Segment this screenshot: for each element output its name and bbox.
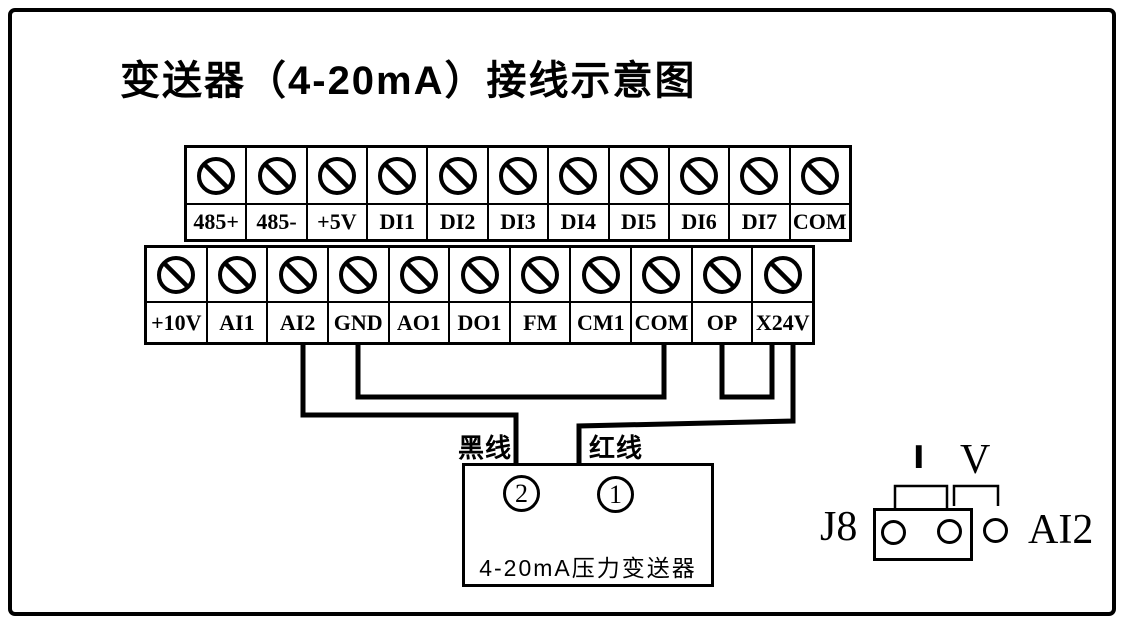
screw-terminal-icon [154, 253, 198, 297]
terminal-OP: OP [691, 248, 752, 342]
screw-terminal-icon [617, 154, 661, 198]
terminal-DO1: DO1 [448, 248, 509, 342]
screw-cell [308, 148, 366, 205]
terminal-label: AI1 [208, 303, 267, 342]
screw-terminal-icon [276, 253, 320, 297]
terminal-CM1: CM1 [569, 248, 630, 342]
terminal-label: COM [791, 205, 849, 239]
terminal-FM: FM [509, 248, 570, 342]
screw-terminal-icon [798, 154, 842, 198]
jumper-pin-3-icon [983, 518, 1008, 543]
terminal-label: X24V [753, 303, 812, 342]
screw-cell [489, 148, 547, 205]
terminal-485+: 485+ [187, 148, 245, 239]
screw-cell [730, 148, 788, 205]
screw-terminal-icon [737, 154, 781, 198]
terminal-label: AI2 [268, 303, 327, 342]
terminal-label: FM [511, 303, 570, 342]
jumper-j8-label: J8 [820, 506, 857, 548]
screw-cell [753, 248, 812, 303]
terminal-DI3: DI3 [487, 148, 547, 239]
terminal-label: DI1 [368, 205, 426, 239]
terminal-AI1: AI1 [206, 248, 267, 342]
screw-terminal-icon [761, 253, 805, 297]
screw-cell [511, 248, 570, 303]
terminal-label: DI7 [730, 205, 788, 239]
terminal-label: DI6 [670, 205, 728, 239]
black-wire-label: 黑线 [458, 428, 512, 465]
terminal-label: COM [632, 303, 691, 342]
screw-cell [390, 248, 449, 303]
terminal-DI4: DI4 [547, 148, 607, 239]
terminal-X24V: X24V [751, 248, 812, 342]
terminal-AI2: AI2 [266, 248, 327, 342]
terminal-label: DI2 [428, 205, 486, 239]
screw-terminal-icon [436, 154, 480, 198]
jumper-current-mode-label: I [913, 443, 925, 474]
terminal-DI5: DI5 [608, 148, 668, 239]
screw-cell [268, 248, 327, 303]
terminal-label: GND [329, 303, 388, 342]
screw-terminal-icon [375, 154, 419, 198]
screw-cell [571, 248, 630, 303]
screw-terminal-icon [458, 253, 502, 297]
terminal-label: 485+ [187, 205, 245, 239]
terminal-COM: COM [630, 248, 691, 342]
terminal-label: 485- [247, 205, 305, 239]
terminal-label: CM1 [571, 303, 630, 342]
terminal-COM: COM [789, 148, 849, 239]
screw-cell [670, 148, 728, 205]
screw-terminal-icon [496, 154, 540, 198]
screw-cell [187, 148, 245, 205]
screw-cell [693, 248, 752, 303]
screw-terminal-icon [336, 253, 380, 297]
terminal-strip-top: 485+485-+5VDI1DI2DI3DI4DI5DI6DI7COM [184, 145, 852, 242]
terminal-DI2: DI2 [426, 148, 486, 239]
terminal-+10V: +10V [147, 248, 206, 342]
screw-cell [329, 248, 388, 303]
screw-terminal-icon [215, 253, 259, 297]
diagram-title: 变送器（4-20mA）接线示意图 [120, 48, 697, 106]
screw-cell [368, 148, 426, 205]
transmitter-pin-2: 2 [503, 475, 540, 512]
screw-terminal-icon [639, 253, 683, 297]
screw-cell [610, 148, 668, 205]
red-wire-label: 红线 [589, 428, 643, 465]
screw-terminal-icon [397, 253, 441, 297]
terminal-AO1: AO1 [388, 248, 449, 342]
transmitter-name: 4-20mA压力变送器 [462, 549, 714, 583]
screw-terminal-icon [579, 253, 623, 297]
screw-cell [428, 148, 486, 205]
screw-cell [549, 148, 607, 205]
screw-terminal-icon [518, 253, 562, 297]
screw-cell [147, 248, 206, 303]
terminal-DI6: DI6 [668, 148, 728, 239]
screw-cell [247, 148, 305, 205]
terminal-label: DI3 [489, 205, 547, 239]
screw-terminal-icon [315, 154, 359, 198]
terminal-label: DI4 [549, 205, 607, 239]
jumper-channel-label: AI2 [1028, 509, 1093, 551]
screw-cell [632, 248, 691, 303]
terminal-label: DI5 [610, 205, 668, 239]
transmitter-pin-1: 1 [597, 476, 634, 513]
screw-cell [791, 148, 849, 205]
terminal-485-: 485- [245, 148, 305, 239]
terminal-GND: GND [327, 248, 388, 342]
terminal-label: DO1 [450, 303, 509, 342]
screw-terminal-icon [700, 253, 744, 297]
terminal-strip-bottom: +10VAI1AI2GNDAO1DO1FMCM1COMOPX24V [144, 245, 815, 345]
terminal-label: AO1 [390, 303, 449, 342]
screw-cell [450, 248, 509, 303]
terminal-label: OP [693, 303, 752, 342]
screw-terminal-icon [677, 154, 721, 198]
terminal-+5V: +5V [306, 148, 366, 239]
jumper-pin-2-icon [937, 519, 962, 544]
screw-terminal-icon [556, 154, 600, 198]
jumper-pin-1-icon [881, 520, 906, 545]
terminal-label: +10V [147, 303, 206, 342]
screw-terminal-icon [255, 154, 299, 198]
screw-cell [208, 248, 267, 303]
terminal-DI7: DI7 [728, 148, 788, 239]
wiring-diagram: 变送器（4-20mA）接线示意图 485+485-+5VDI1DI2DI3DI4… [0, 0, 1125, 624]
screw-terminal-icon [194, 154, 238, 198]
terminal-DI1: DI1 [366, 148, 426, 239]
jumper-voltage-mode-label: V [960, 439, 990, 481]
terminal-label: +5V [308, 205, 366, 239]
